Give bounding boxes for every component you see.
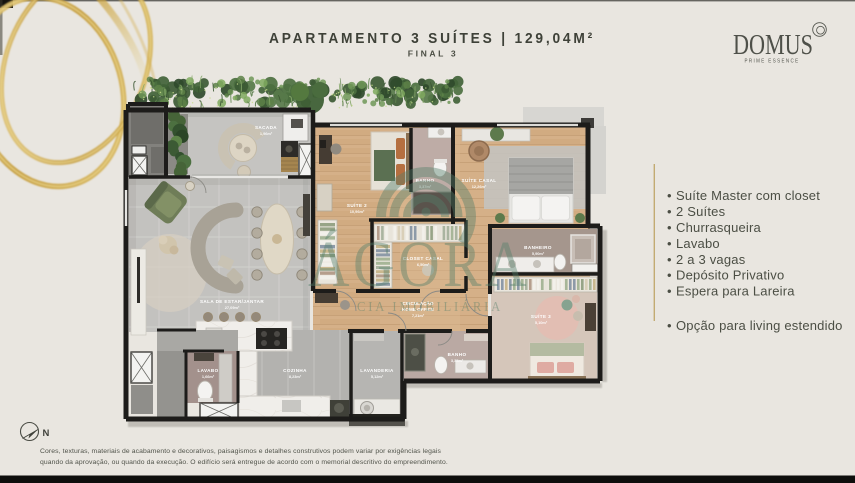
svg-text:FINAL 3: FINAL 3 — [408, 49, 459, 59]
svg-text:2 Suítes: 2 Suítes — [676, 204, 726, 219]
svg-text:N: N — [43, 428, 50, 439]
svg-text:quando da aprovação, ou quando: quando da aprovação, ou quando da execuç… — [40, 459, 448, 466]
svg-text:2 a 3 vagas: 2 a 3 vagas — [676, 252, 746, 267]
svg-text:LAVABO: LAVABO — [197, 368, 218, 373]
svg-text:•: • — [667, 318, 672, 333]
svg-text:5,90m²: 5,90m² — [532, 251, 545, 256]
svg-text:Cores, texturas, materiais de: Cores, texturas, materiais de acabamento… — [40, 448, 441, 455]
svg-text:Lavabo: Lavabo — [676, 236, 720, 251]
svg-text:SACADA: SACADA — [255, 125, 277, 130]
svg-text:3,35m²: 3,35m² — [451, 358, 464, 363]
svg-text:BANHO: BANHO — [448, 352, 467, 357]
svg-text:8,23m²: 8,23m² — [289, 374, 302, 379]
svg-text:CIA IMOBILIÁRIA: CIA IMOBILIÁRIA — [357, 299, 503, 314]
svg-text:•: • — [667, 220, 672, 235]
svg-text:Suíte Master com closet: Suíte Master com closet — [676, 188, 820, 203]
svg-text:•: • — [667, 188, 672, 203]
svg-text:•: • — [667, 204, 672, 219]
svg-text:ÁGORA: ÁGORA — [308, 228, 530, 301]
svg-text:•: • — [667, 284, 672, 299]
svg-text:DOMUS: DOMUS — [733, 30, 813, 61]
svg-text:Churrasqueira: Churrasqueira — [676, 220, 762, 235]
svg-text:10,96m²: 10,96m² — [350, 209, 365, 214]
svg-text:PRIME ESSENCE: PRIME ESSENCE — [745, 59, 800, 65]
svg-text:12,26m²: 12,26m² — [472, 184, 487, 189]
svg-text:COZINHA: COZINHA — [283, 368, 307, 373]
svg-text:1,96m²: 1,96m² — [260, 131, 273, 136]
svg-text:•: • — [667, 236, 672, 251]
svg-text:•: • — [667, 252, 672, 267]
svg-text:SUÍTE CASAL: SUÍTE CASAL — [461, 176, 496, 183]
svg-text:27,09m²: 27,09m² — [225, 305, 240, 310]
svg-text:Opção para living estendido: Opção para living estendido — [676, 318, 843, 333]
svg-text:5,10m²: 5,10m² — [535, 320, 548, 325]
svg-text:LAVANDERIA: LAVANDERIA — [360, 368, 394, 373]
svg-text:Espera para Lareira: Espera para Lareira — [676, 284, 795, 299]
svg-text:APARTAMENTO 3 SUÍTES | 129,04M: APARTAMENTO 3 SUÍTES | 129,04M² — [269, 30, 595, 47]
svg-text:5,12m²: 5,12m² — [371, 374, 384, 379]
svg-text:1,66m²: 1,66m² — [202, 374, 215, 379]
svg-text:Depósito Privativo: Depósito Privativo — [676, 268, 784, 283]
svg-text:•: • — [667, 268, 672, 283]
svg-text:SUÍTE 3: SUÍTE 3 — [531, 312, 551, 319]
svg-text:SALA DE ESTAR/JANTAR: SALA DE ESTAR/JANTAR — [200, 299, 264, 304]
svg-text:SUÍTE 2: SUÍTE 2 — [347, 201, 367, 208]
